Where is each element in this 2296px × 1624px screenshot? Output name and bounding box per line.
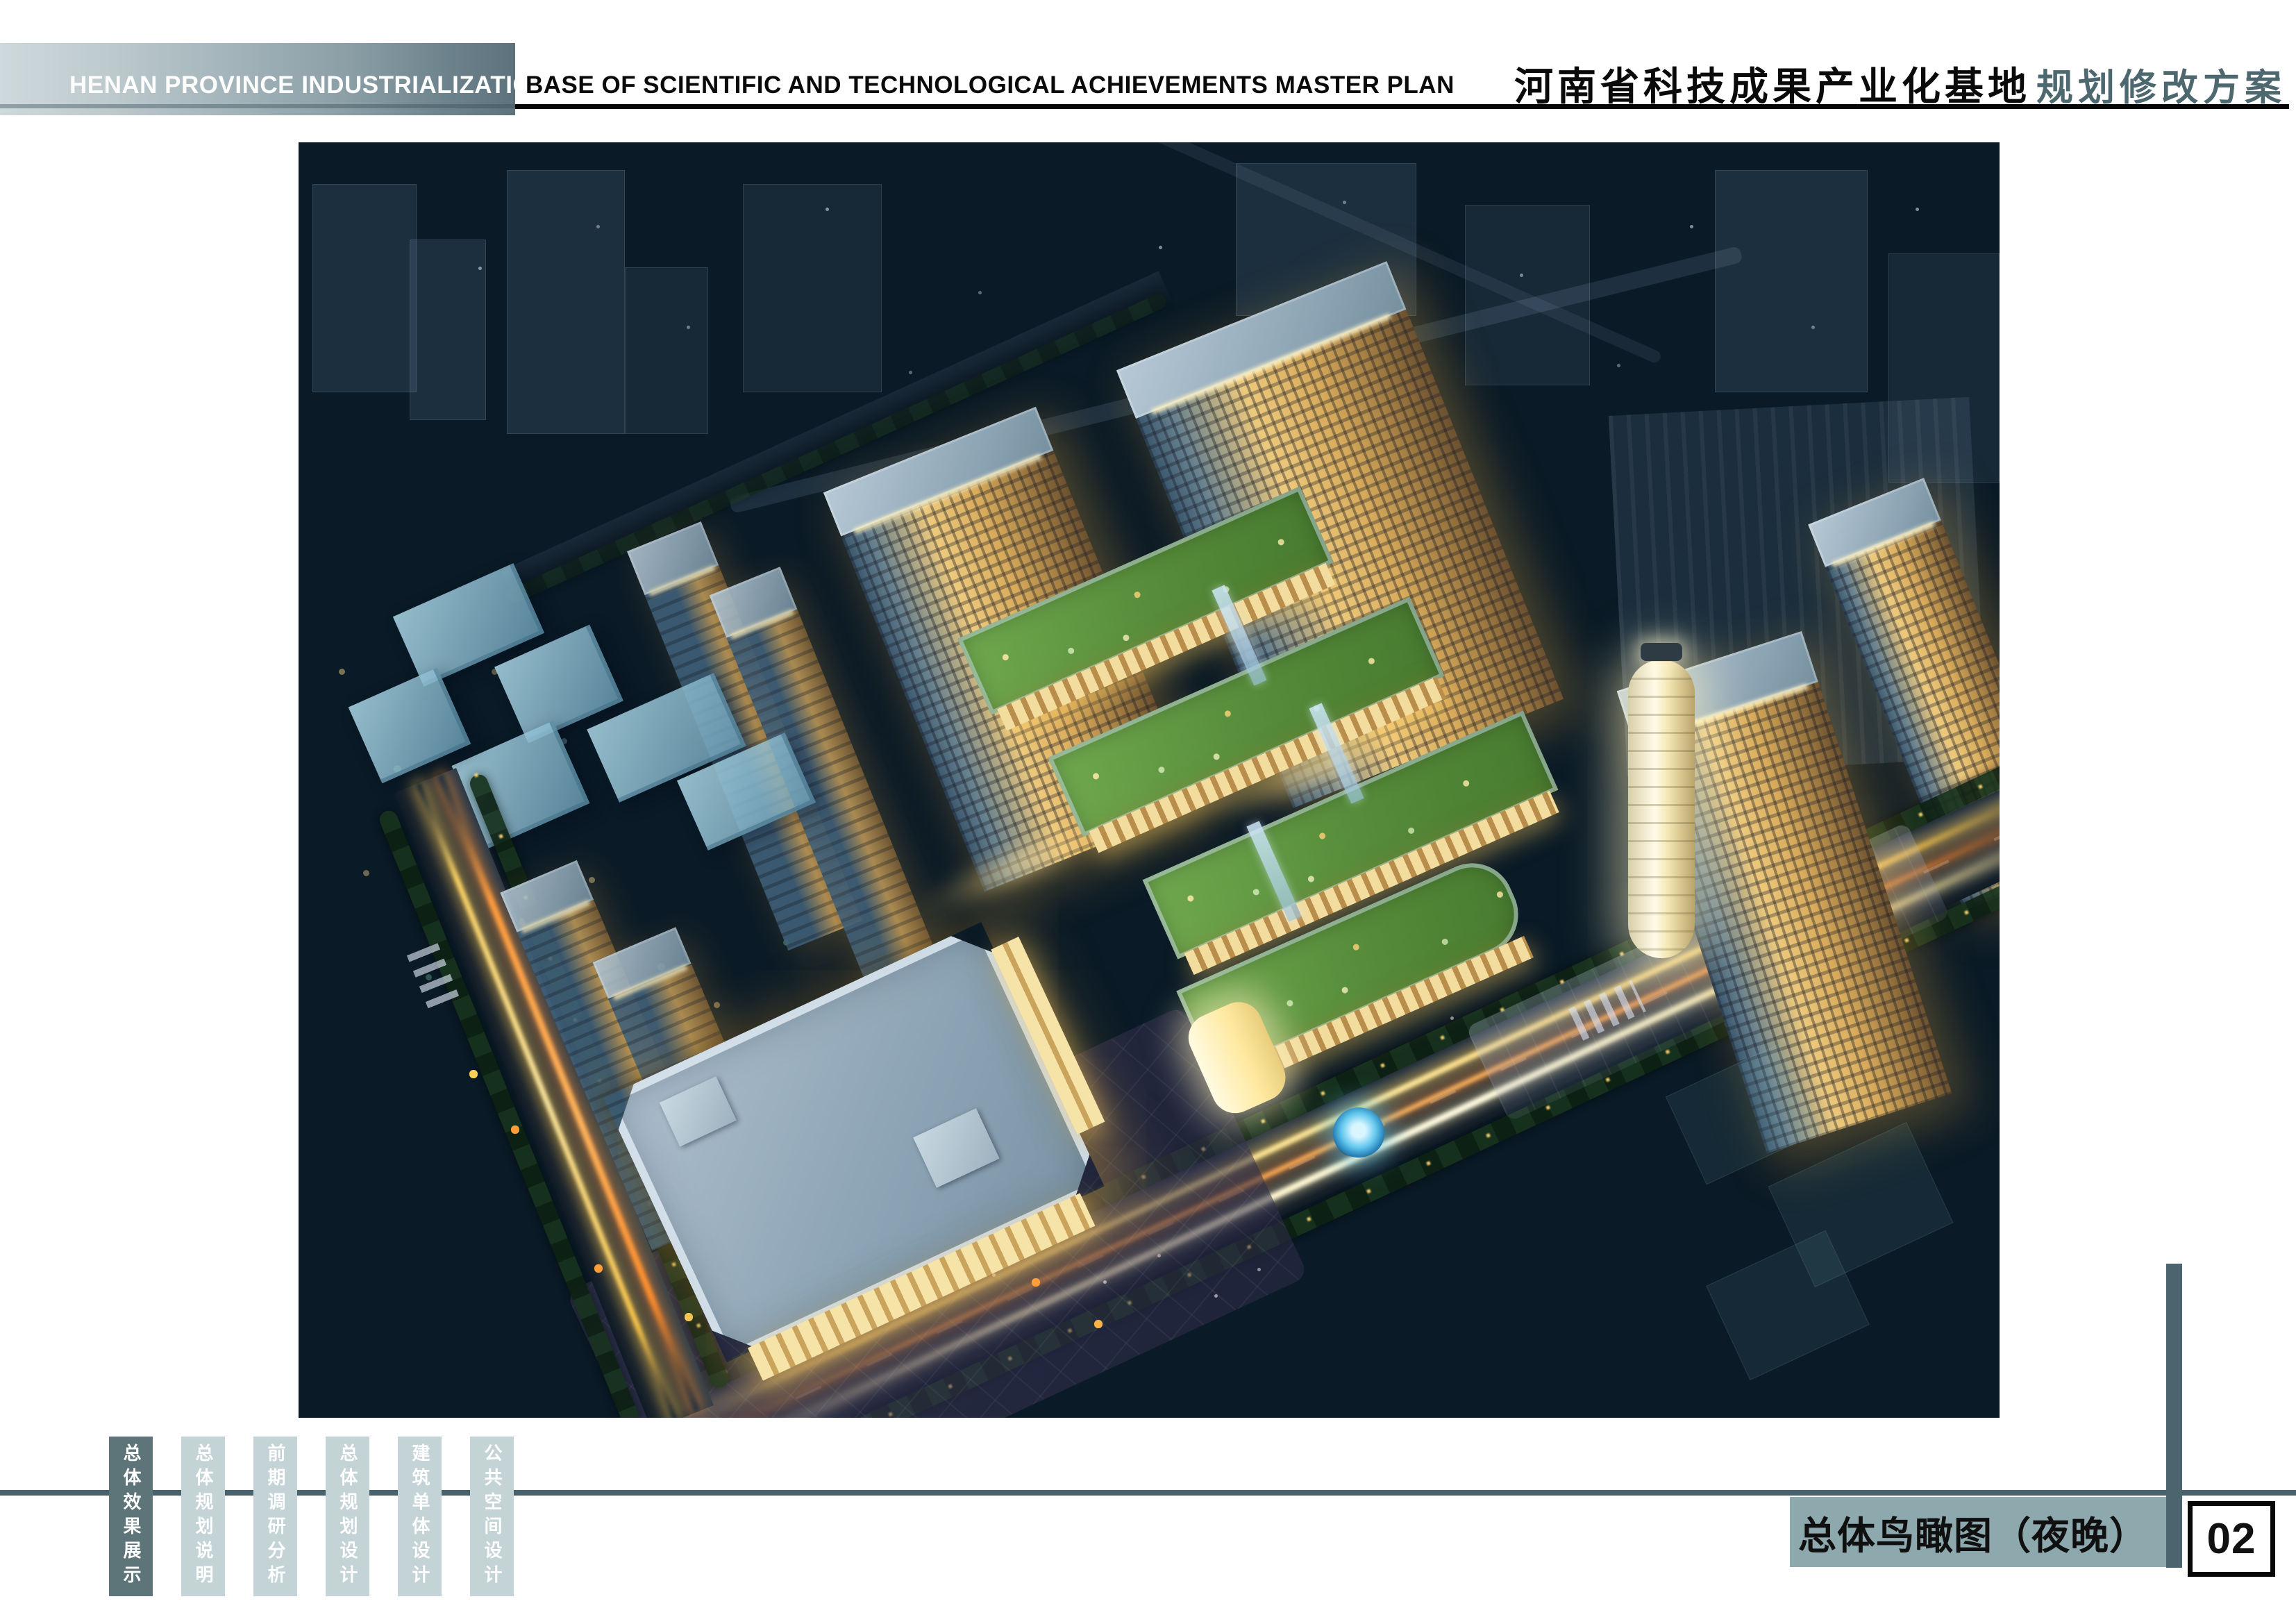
page-number: 02: [2207, 1514, 2256, 1564]
title-english-rest: BASE OF SCIENTIFIC AND TECHNOLOGICAL ACH…: [526, 72, 1455, 99]
ghost-building: [1715, 170, 1868, 392]
aerial-night-rendering: [299, 142, 2000, 1418]
fountain-glow: [1333, 1107, 1384, 1159]
tab-preliminary-research[interactable]: 前期调研分析: [253, 1437, 297, 1596]
tab-label: 建筑单体设计: [398, 1443, 442, 1589]
ghost-building: [312, 184, 417, 392]
tab-label: 总体规划说明: [181, 1443, 225, 1589]
presentation-board: { "header": { "title_en_highlight": "HEN…: [0, 0, 2296, 1624]
tab-overall-plan-design[interactable]: 总体规划设计: [326, 1437, 369, 1596]
tab-building-unit-design[interactable]: 建筑单体设计: [398, 1437, 442, 1596]
ghost-building: [410, 240, 486, 420]
header-rule-gray: [0, 104, 515, 108]
title-chinese-main: 河南省科技成果产业化基地: [1514, 65, 2031, 108]
tab-overall-plan-description[interactable]: 总体规划说明: [181, 1437, 225, 1596]
caption-side-bar: [2166, 1264, 2182, 1568]
page-number-box: 02: [2188, 1501, 2275, 1577]
caption-text: 总体鸟瞰图（夜晚）: [1790, 1505, 2148, 1560]
caption-bar: 总体鸟瞰图（夜晚）: [1790, 1497, 2166, 1567]
tab-public-space-design[interactable]: 公共空间设计: [470, 1437, 514, 1596]
title-chinese-subtitle: 规划修改方案: [2036, 67, 2286, 108]
tab-label: 公共空间设计: [470, 1443, 514, 1589]
pedestrian-dots: [299, 142, 301, 144]
tab-label: 总体效果展示: [109, 1443, 153, 1589]
title-chinese: 河南省科技成果产业化基地规划修改方案: [1514, 56, 2286, 112]
title-english-highlight: HENAN PROVINCE INDUSTRIALIZATION: [69, 72, 550, 99]
tab-label: 总体规划设计: [326, 1443, 369, 1589]
glowing-cylinder-tower: [1628, 660, 1695, 958]
tab-label: 前期调研分析: [253, 1443, 297, 1589]
ghost-building: [507, 170, 625, 434]
tab-overall-effect-display[interactable]: 总体效果展示: [109, 1437, 153, 1596]
ghost-building: [743, 184, 882, 392]
ghost-building: [625, 267, 708, 434]
